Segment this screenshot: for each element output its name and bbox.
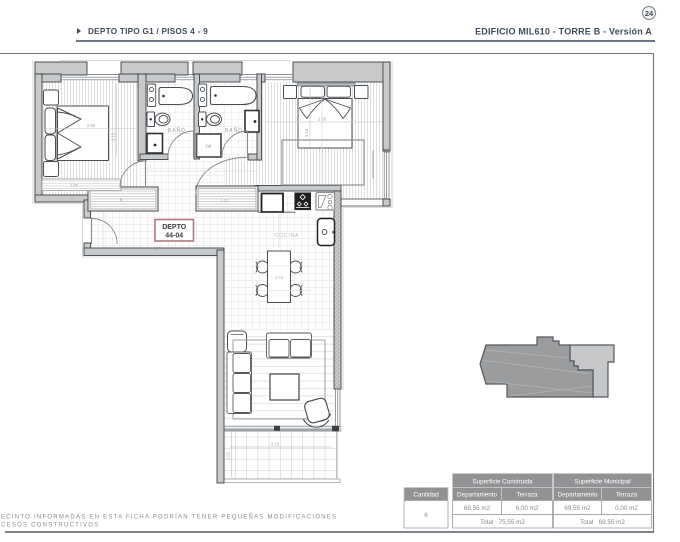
svg-text:DEPTO: DEPTO bbox=[162, 224, 187, 231]
svg-text:2.6: 2.6 bbox=[155, 246, 161, 251]
svg-text:1.25: 1.25 bbox=[70, 183, 79, 188]
svg-text:69,55 m2: 69,55 m2 bbox=[464, 505, 491, 512]
svg-text:24: 24 bbox=[645, 9, 654, 18]
svg-text:0,00 m2: 0,00 m2 bbox=[615, 505, 638, 512]
svg-text:Terraza: Terraza bbox=[517, 492, 538, 499]
svg-text:Total 75,55 m2: Total 75,55 m2 bbox=[480, 519, 525, 526]
svg-text:1.51: 1.51 bbox=[226, 451, 231, 460]
svg-text:DEPTO TIPO G1 / PISOS 4 - 9: DEPTO TIPO G1 / PISOS 4 - 9 bbox=[88, 27, 208, 36]
svg-text:3.23: 3.23 bbox=[271, 442, 280, 447]
svg-text:6,00 m2: 6,00 m2 bbox=[516, 505, 539, 512]
svg-text:44-04: 44-04 bbox=[165, 233, 183, 240]
svg-text:3.15: 3.15 bbox=[111, 132, 116, 141]
svg-text:2.03: 2.03 bbox=[318, 117, 327, 122]
svg-text:Departamento: Departamento bbox=[457, 492, 497, 499]
svg-text:69,55 m2: 69,55 m2 bbox=[564, 505, 591, 512]
svg-text:2.50: 2.50 bbox=[87, 123, 96, 128]
svg-text:6: 6 bbox=[424, 512, 428, 519]
svg-text:Total 69,55 m2: Total 69,55 m2 bbox=[580, 519, 625, 526]
svg-text:Terraza: Terraza bbox=[616, 492, 637, 499]
svg-text:ECINTO INFORMADAS EN ESTA FICH: ECINTO INFORMADAS EN ESTA FICHA PODRÍAN … bbox=[1, 514, 337, 521]
svg-text:0.75: 0.75 bbox=[275, 275, 284, 280]
svg-text:LW: LW bbox=[206, 144, 212, 149]
svg-text:3.15: 3.15 bbox=[304, 128, 309, 137]
svg-text:CESOS CONSTRUCTIVOS: CESOS CONSTRUCTIVOS bbox=[1, 523, 99, 529]
svg-text:1.11: 1.11 bbox=[220, 198, 229, 203]
svg-text:BAÑO: BAÑO bbox=[225, 127, 243, 134]
svg-text:Cantidad: Cantidad bbox=[413, 492, 439, 499]
svg-text:EDIFICIO MIL610 - TORRE B - Ve: EDIFICIO MIL610 - TORRE B - Versión A bbox=[475, 27, 652, 37]
svg-text:Superficie Municipal: Superficie Municipal bbox=[574, 479, 630, 486]
svg-text:COCINA: COCINA bbox=[275, 233, 300, 239]
svg-text:Departamento: Departamento bbox=[558, 492, 598, 499]
svg-text:Superficie Construida: Superficie Construida bbox=[472, 479, 533, 486]
